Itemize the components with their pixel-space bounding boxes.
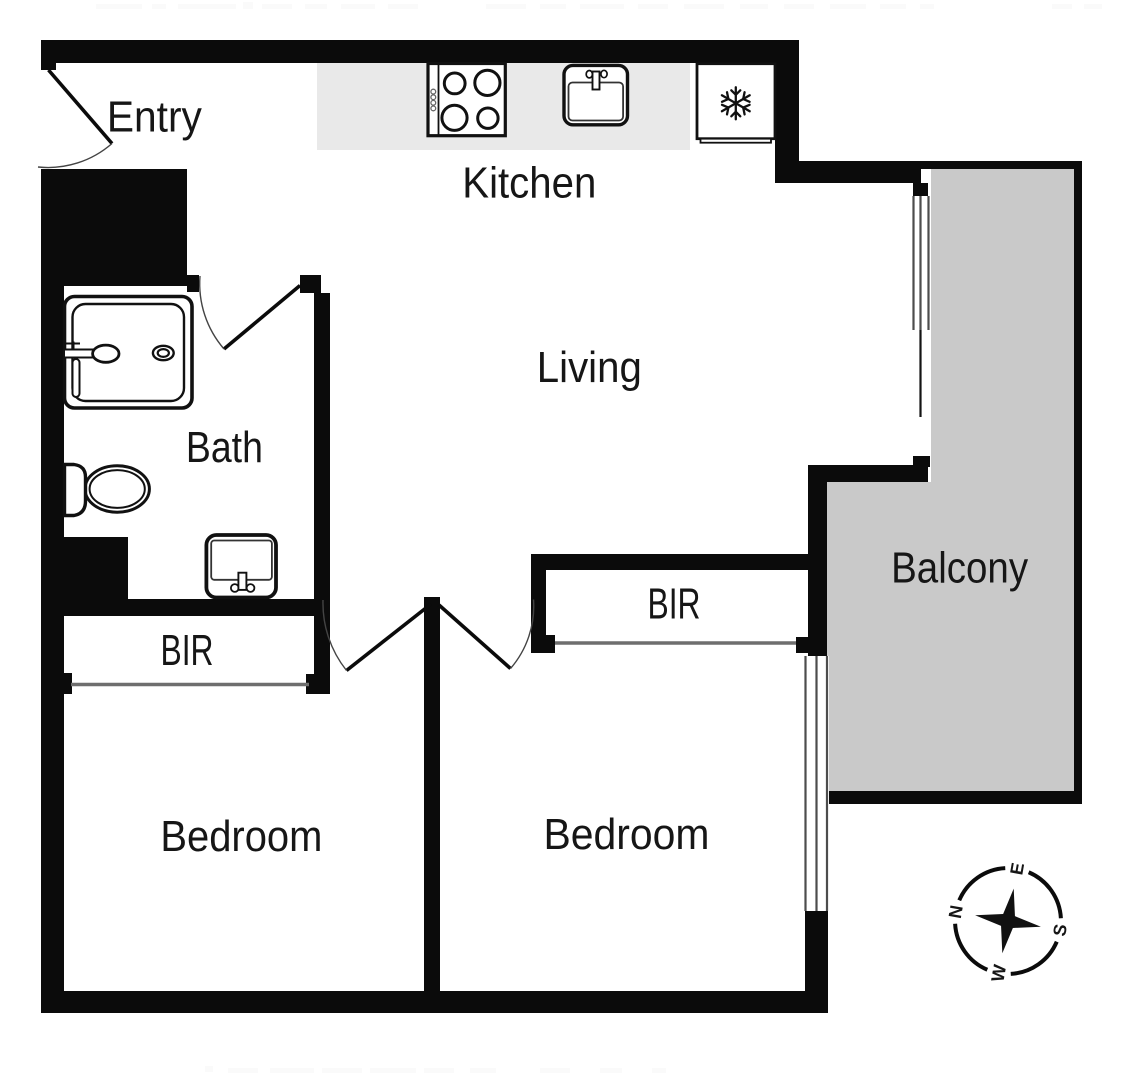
svg-text:BIR: BIR xyxy=(648,580,701,629)
svg-text:Bedroom: Bedroom xyxy=(544,810,710,859)
svg-text:Entry: Entry xyxy=(107,93,202,142)
svg-text:W: W xyxy=(987,963,1010,983)
svg-text:BIR: BIR xyxy=(161,626,214,675)
svg-text:Bath: Bath xyxy=(186,423,263,472)
svg-text:Living: Living xyxy=(537,343,642,392)
svg-text:Kitchen: Kitchen xyxy=(462,158,596,207)
svg-text:Bedroom: Bedroom xyxy=(160,812,322,861)
svg-text:Balcony: Balcony xyxy=(891,544,1028,593)
